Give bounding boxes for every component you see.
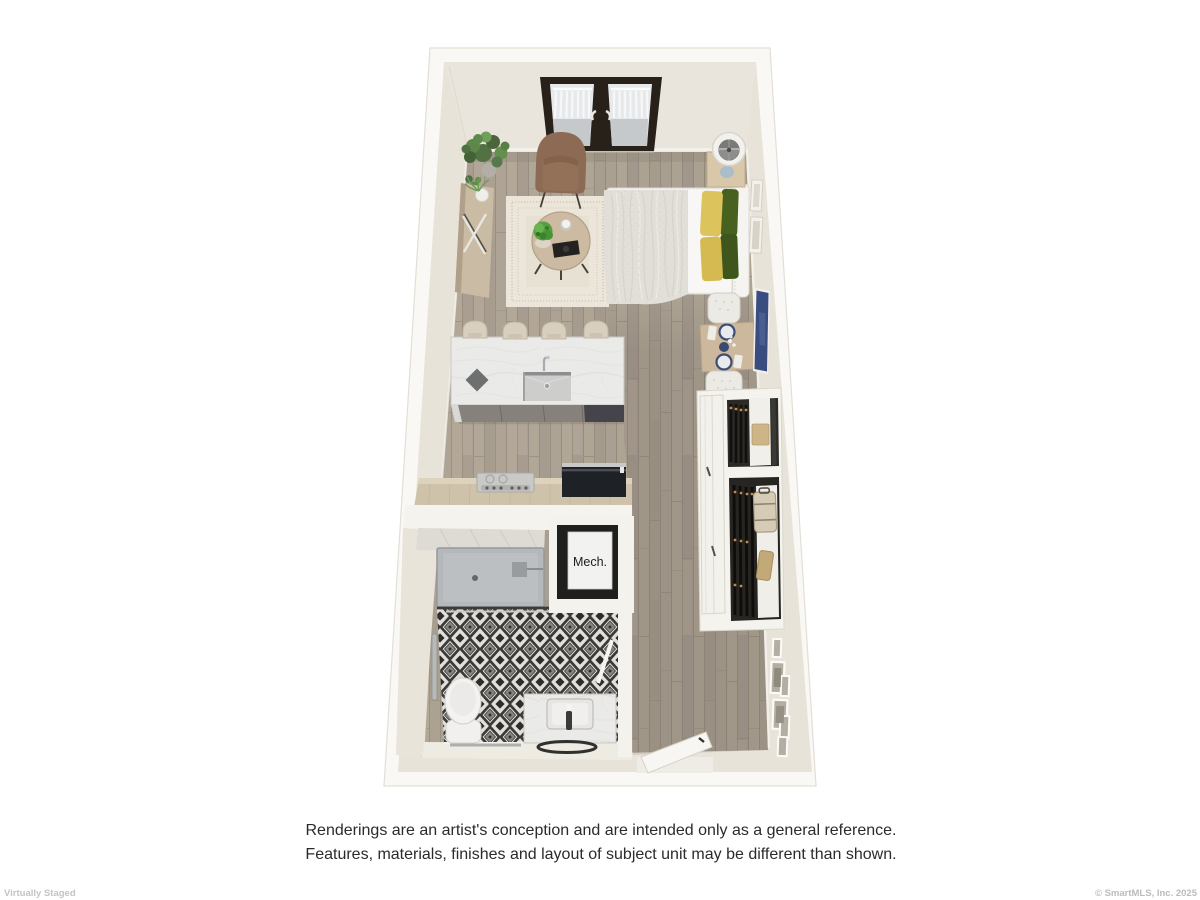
svg-text:Features, materials, finishes: Features, materials, finishes and layout… (305, 846, 896, 863)
svg-text:Renderings are an artist's con: Renderings are an artist's conception an… (306, 822, 897, 839)
svg-text:© SmartMLS, Inc. 2025: © SmartMLS, Inc. 2025 (1095, 888, 1198, 899)
svg-text:Virtually Staged: Virtually Staged (4, 888, 76, 899)
svg-text:Mech.: Mech. (573, 555, 607, 569)
